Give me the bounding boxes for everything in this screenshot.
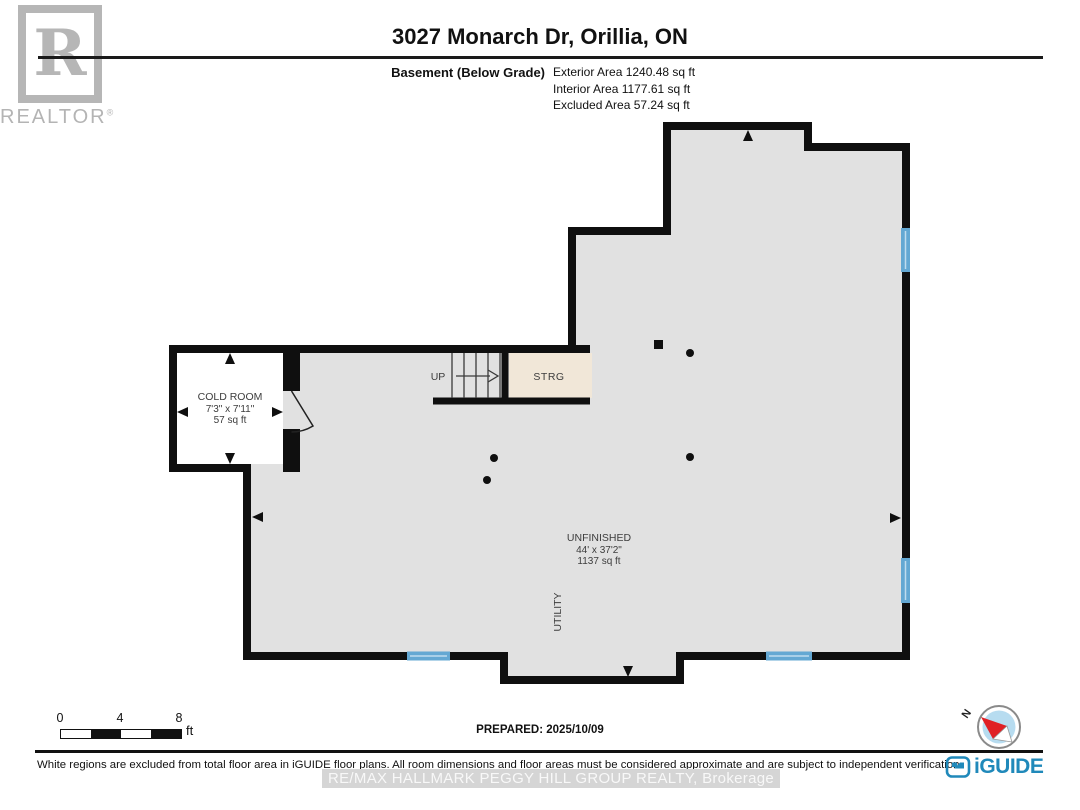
excluded-area: Excluded Area 57.24 sq ft [553, 97, 695, 114]
unfinished-area: 1137 sq ft [577, 556, 620, 567]
storage-label: STRG [533, 371, 564, 383]
page-title: 3027 Monarch Dr, Orillia, ON [0, 24, 1080, 50]
compass-north-label: N [960, 707, 974, 720]
unfinished-name: UNFINISHED [567, 532, 632, 544]
cold-room-area: 57 sq ft [214, 415, 247, 426]
interior-area: Interior Area 1177.61 sq ft [553, 81, 695, 98]
iguide-logo-text: iGUIDE [974, 755, 1043, 779]
scale-tick-0: 0 [53, 711, 67, 725]
scale-tick-8: 8 [172, 711, 186, 725]
prepared-date: PREPARED: 2025/10/09 [0, 724, 1080, 736]
header-divider [38, 56, 1043, 59]
brokerage-watermark: RE/MAX HALLMARK PEGGY HILL GROUP REALTY,… [322, 769, 780, 788]
realtor-logo: R [18, 5, 102, 103]
iguide-logo: iGUIDE [945, 755, 1043, 779]
cold-room-name: COLD ROOM [198, 391, 263, 403]
iguide-camera-icon [945, 755, 971, 779]
stairs-label: UP [431, 371, 446, 383]
cold-room-right-wall-lower [283, 429, 300, 472]
realtor-wordmark: REALTOR® [0, 106, 150, 129]
scale-tick-4: 4 [113, 711, 127, 725]
realtor-logo-letter: R [33, 22, 86, 86]
floor-label: Basement (Below Grade) [250, 65, 545, 80]
area-summary: Exterior Area 1240.48 sq ft Interior Are… [553, 64, 695, 114]
exterior-area: Exterior Area 1240.48 sq ft [553, 64, 695, 81]
unfinished-dimensions: 44' x 37'2" [576, 545, 622, 556]
cold-room-dimensions: 7'3" x 7'11" [206, 404, 255, 415]
cold-room-right-wall-upper [283, 345, 300, 391]
utility-label: UTILITY [552, 592, 564, 631]
registered-trademark: ® [107, 107, 116, 117]
floor-plan: UP STRG COLD ROOM 7'3" x 7'11" 57 sq ft … [0, 0, 1080, 810]
footer-divider [35, 750, 1043, 753]
